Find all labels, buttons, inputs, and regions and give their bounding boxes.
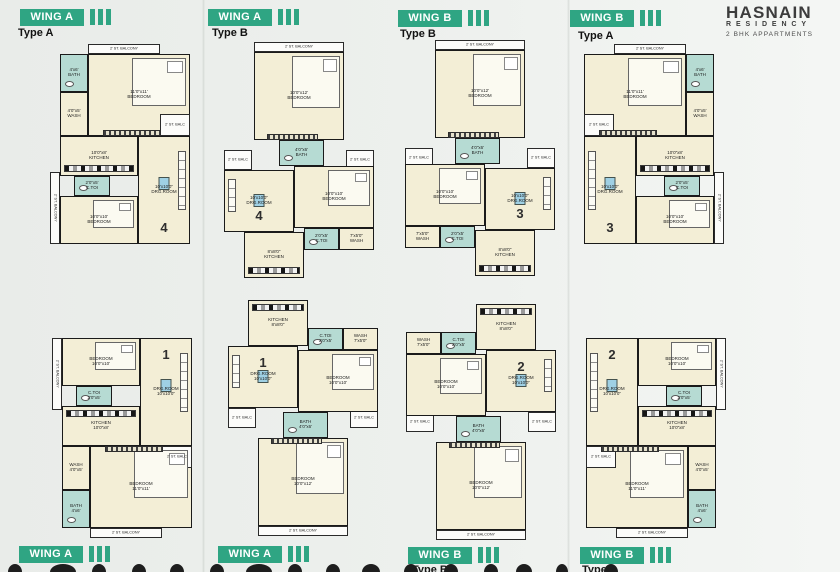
room-label: 2' ST. BALC: [412, 416, 428, 427]
bed-furniture: [132, 58, 186, 106]
room-label: 2' ST. BALC: [166, 119, 183, 131]
kitchen-counter: [248, 267, 300, 274]
label-line: BATH: [472, 151, 484, 156]
room-balcony-top: 2' ST. BALCONY: [88, 44, 160, 54]
room-bath: 4'0"x6'BATH: [279, 140, 324, 166]
flat-number: 4: [160, 220, 167, 235]
label-line: 7'x5'0": [354, 339, 367, 344]
room-bedroom-2: BEDROOM10'0"x10': [638, 338, 716, 386]
flat-number: 1: [259, 355, 266, 370]
scan-artifact: [246, 564, 272, 572]
room-label: 4'0"x5'WASH: [690, 98, 710, 130]
stripe-bar: [486, 547, 491, 563]
label-line: BATH: [300, 420, 312, 425]
room-bedroom-1: 10'0"x12'BEDROOM: [254, 52, 344, 140]
label-line: 7'x5'0": [416, 232, 429, 237]
room-label: 4'0"x5'WASH: [64, 98, 84, 130]
room-label: 2' ST. BALC: [356, 412, 372, 423]
kitchen-counter: [479, 265, 531, 272]
room-wash: WASH7'x5'0": [343, 328, 378, 350]
wing-tag: WING B: [408, 546, 499, 564]
label-line: 2' ST. BALCONY: [110, 47, 138, 51]
label-line: 4'x6': [698, 509, 707, 514]
room-balcony-top: 2' ST. BALCONY: [616, 528, 688, 538]
label-line: 2' ST. BALC: [409, 156, 429, 160]
wing-stripes-decoration: [90, 9, 111, 25]
toilet-fixture: [65, 81, 74, 87]
room-balc-left: 2' ST. BALC: [224, 150, 252, 170]
page-crease: [567, 0, 570, 572]
label-line: 2' ST. BALC: [532, 420, 552, 424]
room-c-toi: 2'0"x5'C.TOI: [664, 176, 700, 196]
table-furniture: [258, 370, 269, 383]
toilet-fixture: [67, 517, 76, 523]
label-line: 2' ST. BALCONY: [112, 531, 140, 535]
wing-label: WING A: [19, 546, 83, 563]
wing-label: WING B: [408, 547, 472, 564]
wing-tag: WING A: [19, 545, 110, 563]
room-bath: BATH4'x6': [62, 490, 90, 528]
table-furniture: [159, 177, 170, 190]
label-line: 4'0"x6': [472, 429, 485, 434]
wardrobe-strip: [601, 446, 659, 452]
floor-plan-2-wing-a: 2' ST. BALCONY10'0"x12'BEDROOM4'0"x6'BAT…: [224, 42, 374, 278]
toilet-fixture: [460, 153, 469, 159]
floor-plan-1-wing-a: 2' ST. BALCONY11'0"x11'BEDROOM4'x6'BATH4…: [50, 44, 190, 244]
label-line: 2'0"x5': [451, 232, 464, 237]
stripe-bar: [476, 10, 481, 26]
wing-stripes-decoration: [650, 547, 671, 563]
label-line: WASH: [354, 334, 367, 339]
toilet-fixture: [691, 81, 700, 87]
label-line: C.TOI: [678, 391, 690, 396]
room-wash: WASH7'x5'0": [406, 332, 441, 354]
room-c-toi: C.TOI2'0"x5': [308, 328, 343, 350]
label-line: 10'0"x8': [667, 151, 683, 156]
room-kitchen: 8'x8'0"KITCHEN: [244, 232, 304, 278]
label-line: 2' ST. BALC: [165, 123, 185, 127]
label-line: 2' ST. BALC: [410, 420, 430, 424]
wardrobe-strip: [448, 132, 499, 138]
brand-name: HASNAIN: [726, 5, 834, 20]
type-label: Type A: [18, 27, 53, 39]
flat-number: 2: [608, 347, 615, 362]
label-line: KITCHEN: [665, 156, 685, 161]
room-c-toi: C.TOI2'0"x5': [441, 332, 476, 354]
label-line: 2' ST. BALC: [232, 416, 252, 420]
label-line: 10'0"x8': [91, 151, 107, 156]
label-line: WASH: [350, 239, 363, 244]
label-line: 4'0"x6': [295, 148, 308, 153]
sofa-furniture: [590, 353, 598, 412]
label-line: BATH: [68, 73, 80, 78]
label-line: 4'0"x5': [693, 109, 706, 114]
toilet-fixture: [81, 395, 90, 401]
room-balcony-top: 2' ST. BALCONY: [614, 44, 686, 54]
stripe-bar: [656, 10, 661, 26]
label-line: 2' ST. BALCONY: [53, 194, 57, 222]
wing-tag: WING A: [20, 8, 111, 26]
room-balcony-left: 2' ST. BALCONY: [52, 338, 62, 410]
wing-tag: WING B: [398, 9, 489, 27]
room-drg-room: DRG.ROOM10'x10'0"1: [228, 346, 298, 408]
room-label: 2' ST. BALCONY: [630, 531, 673, 536]
room-drg-room: 10'x10'0"DRG.ROOM3: [584, 136, 636, 244]
bed-furniture: [473, 54, 521, 106]
label-line: WASH: [695, 463, 708, 468]
room-label: 2' ST. BALC: [352, 154, 368, 165]
label-line: C.TOI: [453, 338, 465, 343]
room-bedroom-2: BEDROOM10'0"x10': [298, 350, 378, 412]
label-line: 10'x10'0": [603, 392, 621, 397]
scan-artifact: [326, 564, 340, 572]
room-c-toi: 2'0"x5'C.TOI: [74, 176, 110, 196]
room-bedroom-1: 10'0"x12'BEDROOM: [435, 50, 525, 138]
wing-stripes-decoration: [278, 9, 299, 25]
scan-artifact: [444, 564, 458, 572]
toilet-fixture: [446, 343, 455, 349]
room-bedroom-2: 10'0"x10'BEDROOM: [405, 164, 485, 226]
floor-plan-5-wing-a: 2' ST. BALCONYBEDROOM11'0"x11'BATH4'x6'W…: [52, 338, 192, 538]
wing-tag: WING A: [208, 8, 299, 26]
kitchen-counter: [252, 304, 304, 311]
label-line: 2'0"x5': [85, 181, 98, 186]
label-line: 2'0"x5': [675, 181, 688, 186]
room-label: 2' ST. BALC: [234, 412, 250, 423]
scan-artifact: [516, 564, 532, 572]
stripe-bar: [494, 547, 499, 563]
label-line: BATH: [296, 153, 308, 158]
room-balcony-left: 2' ST. BALCONY: [50, 172, 60, 244]
label-line: 7'x5'0": [350, 234, 363, 239]
room-drg-room: DRG.ROOM10'x10'0"1: [140, 338, 192, 446]
label-line: WASH: [416, 237, 429, 242]
room-balcony-top: 2' ST. BALCONY: [435, 40, 525, 50]
room-label: 2' ST. BALCONY: [454, 533, 509, 538]
floor-plan-6-wing-a: 2' ST. BALCONYBEDROOM10'0"x12'BATH4'0"x6…: [228, 300, 378, 536]
flat-number: 3: [606, 220, 613, 235]
label-line: 2' ST. BALC: [531, 156, 551, 160]
flat-number: 2: [517, 359, 524, 374]
room-label: 2' ST. BALCONY: [53, 186, 58, 229]
room-wash: WASH4'0"x5': [62, 446, 90, 490]
label-line: KITCHEN: [89, 156, 109, 161]
room-label: 2' ST. BALCONY: [717, 186, 722, 229]
sofa-furniture: [228, 179, 236, 213]
room-label: 2' ST. BALC: [411, 152, 427, 163]
stripe-bar: [89, 546, 94, 562]
label-line: KITCHEN: [268, 318, 288, 323]
room-bedroom-2: 10'0"x10'BEDROOM: [636, 196, 714, 244]
label-line: 10'0"x8': [93, 426, 109, 431]
room-kitchen: KITCHEN8'x8'0": [476, 304, 536, 350]
toilet-fixture: [288, 427, 297, 433]
sofa-furniture: [543, 177, 551, 211]
room-label: WASH4'0"x5': [692, 452, 712, 484]
label-line: DRG.ROOM: [597, 190, 622, 195]
label-line: 2' ST. BALCONY: [289, 529, 317, 533]
toilet-fixture: [445, 237, 454, 243]
toilet-fixture: [309, 239, 318, 245]
wing-stripes-decoration: [478, 547, 499, 563]
room-label: 2' ST. BALCONY: [453, 43, 508, 48]
label-line: 4'0"x6': [471, 146, 484, 151]
label-line: 2' ST. BALC: [591, 455, 611, 459]
label-line: 2' ST. BALC: [589, 123, 609, 127]
room-kitchen: 10'0"x8'KITCHEN: [636, 136, 714, 176]
bed-furniture: [328, 170, 370, 206]
room-label: WASH7'x5'0": [348, 332, 373, 347]
wardrobe-strip: [267, 134, 318, 140]
wing-tag: WING A: [218, 545, 309, 563]
label-line: 10'0"x8': [669, 426, 685, 431]
label-line: KITCHEN: [495, 253, 515, 258]
room-label: 2' ST. BALCONY: [719, 352, 724, 395]
label-line: WASH: [69, 463, 82, 468]
room-drg-room: DRG.ROOM10'x10'0"2: [586, 338, 638, 446]
kitchen-counter: [66, 410, 136, 417]
room-balcony-top: 2' ST. BALCONY: [90, 528, 162, 538]
label-line: WASH: [67, 114, 80, 119]
bed-furniture: [292, 56, 340, 108]
bed-furniture: [671, 342, 712, 370]
label-line: 7'x5'0": [417, 343, 430, 348]
flat-number: 1: [162, 347, 169, 362]
room-bedroom-1: BEDROOM10'0"x12': [258, 438, 348, 526]
wardrobe-strip: [449, 442, 500, 448]
room-label: 2' ST. BALC: [534, 416, 550, 427]
label-line: 2' ST. BALCONY: [466, 43, 494, 47]
stripe-bar: [478, 547, 483, 563]
type-label: Type A: [578, 30, 613, 42]
table-furniture: [254, 194, 265, 207]
room-c-toi: C.TOI2'0"x5': [666, 386, 702, 406]
table-furniture: [161, 379, 172, 392]
stripe-bar: [658, 547, 663, 563]
floor-plan-3-wing-b: 2' ST. BALCONY10'0"x12'BEDROOM4'0"x6'BAT…: [405, 40, 555, 276]
wing-stripes-decoration: [288, 546, 309, 562]
label-line: BATH: [70, 504, 82, 509]
toilet-fixture: [284, 155, 293, 161]
room-wash: 4'0"x5'WASH: [60, 92, 88, 136]
room-label: WASH7'x5'0": [411, 336, 436, 351]
room-balcony-top: 2' ST. BALCONY: [436, 530, 526, 540]
label-line: 2'0"x5': [315, 234, 328, 239]
room-label: KITCHEN8'x8'0": [484, 311, 528, 344]
wing-tag: WING B: [580, 546, 671, 564]
stripe-bar: [296, 546, 301, 562]
floor-plan-4-wing-b: 2' ST. BALCONY11'0"x11'BEDROOM4'x6'BATH4…: [584, 44, 724, 244]
label-line: 4'0"x6': [299, 425, 312, 430]
scan-artifact: [132, 564, 146, 572]
wing-label: WING A: [208, 9, 272, 26]
scan-artifact: [362, 564, 380, 572]
room-label: 2' ST. BALCONY: [102, 47, 145, 52]
brand-tagline: 2 BHK APPARTMENTS: [726, 31, 834, 38]
room-bath: BATH4'x6': [688, 490, 716, 528]
wing-stripes-decoration: [468, 10, 489, 26]
label-line: 2' ST. BALC: [354, 416, 374, 420]
room-label: 2' ST. BALC: [230, 154, 246, 165]
stripe-bar: [468, 10, 473, 26]
label-line: 4'x6': [72, 509, 81, 514]
room-kitchen: KITCHEN10'0"x8': [62, 406, 140, 446]
room-balc-left: 2' ST. BALC: [228, 408, 256, 428]
bed-furniture: [440, 358, 482, 394]
bed-furniture: [628, 58, 682, 106]
room-bath: BATH4'0"x6': [456, 416, 501, 442]
brand-subname: RESIDENCY: [726, 21, 834, 28]
scan-artifact: [8, 564, 22, 572]
bed-furniture: [474, 446, 522, 498]
label-line: WASH: [693, 114, 706, 119]
bed-furniture: [630, 450, 684, 498]
brand-logo: HASNAIN RESIDENCY 2 BHK APPARTMENTS: [726, 5, 834, 38]
room-drg-room: 10'x10'0"DRG.ROOM4: [224, 170, 294, 232]
label-line: DRG.ROOM: [151, 190, 176, 195]
room-bath: 4'x6'BATH: [60, 54, 88, 92]
label-line: 4'x6': [70, 68, 79, 73]
room-bath: 4'x6'BATH: [686, 54, 714, 92]
room-bedroom-2: 10'0"x10'BEDROOM: [60, 196, 138, 244]
label-line: 4'0"x5': [67, 109, 80, 114]
scan-artifact: [50, 564, 76, 572]
sofa-furniture: [588, 151, 596, 210]
scan-artifact: [484, 564, 498, 572]
label-line: 2' ST. BALCONY: [717, 194, 721, 222]
table-furniture: [515, 192, 526, 205]
label-line: KITCHEN: [91, 421, 111, 426]
bed-furniture: [439, 168, 481, 204]
label-line: BATH: [696, 504, 708, 509]
label-line: WASH: [417, 338, 430, 343]
sofa-furniture: [178, 151, 186, 210]
room-bedroom-2: BEDROOM10'0"x10': [406, 354, 486, 416]
bed-furniture: [95, 342, 136, 370]
room-kitchen: 8'x8'0"KITCHEN: [475, 230, 535, 276]
label-line: 8'x8'0": [267, 250, 280, 255]
stripe-bar: [105, 546, 110, 562]
bed-furniture: [332, 354, 374, 390]
room-label: KITCHEN8'x8'0": [256, 307, 300, 340]
stripe-bar: [278, 9, 283, 25]
wing-label: WING B: [570, 10, 634, 27]
flat-number: 4: [255, 208, 262, 223]
stripe-bar: [98, 9, 103, 25]
toilet-fixture: [693, 517, 702, 523]
room-c-toi: C.TOI2'0"x5': [76, 386, 112, 406]
sofa-furniture: [232, 355, 240, 389]
sofa-furniture: [180, 353, 188, 412]
flat-number: 3: [516, 206, 523, 221]
room-bedroom-2: BEDROOM10'0"x10': [62, 338, 140, 386]
label-line: KITCHEN: [264, 255, 284, 260]
label-line: 2' ST. BALCONY: [285, 45, 313, 49]
room-bath: BATH4'0"x6': [283, 412, 328, 438]
label-line: 2' ST. BALCONY: [636, 47, 664, 51]
stripe-bar: [294, 9, 299, 25]
scan-artifact: [170, 564, 184, 572]
room-wash: 4'0"x5'WASH: [686, 92, 714, 136]
wing-label: WING A: [20, 9, 84, 26]
room-label: 2' ST. BALC: [533, 152, 549, 163]
toilet-fixture: [313, 339, 322, 345]
brochure-page: HASNAIN RESIDENCY 2 BHK APPARTMENTS WING…: [0, 0, 840, 572]
sofa-furniture: [544, 359, 552, 393]
bed-furniture: [669, 200, 710, 228]
room-label: 2' ST. BALCONY: [55, 352, 60, 395]
kitchen-counter: [480, 308, 532, 315]
room-balcony-top: 2' ST. BALCONY: [258, 526, 348, 536]
kitchen-counter: [64, 165, 134, 172]
label-line: 2' ST. BALCONY: [719, 360, 723, 388]
room-kitchen: 10'0"x8'KITCHEN: [60, 136, 138, 176]
wing-stripes-decoration: [89, 546, 110, 562]
scan-artifact: [556, 564, 568, 572]
stripe-bar: [97, 546, 102, 562]
room-bath: 4'0"x6'BATH: [455, 138, 500, 164]
label-line: 2' ST. BALCONY: [638, 531, 666, 535]
label-line: 2' ST. BALC: [228, 158, 248, 162]
label-line: 4'0"x5': [69, 468, 82, 473]
room-label: 7'x5'0"WASH: [344, 232, 369, 247]
label-line: 2' ST. BALCONY: [467, 533, 495, 537]
bed-furniture: [134, 450, 188, 498]
room-label: 2' ST. BALCONY: [272, 45, 327, 50]
stripe-bar: [650, 547, 655, 563]
bed-furniture: [93, 200, 134, 228]
table-furniture: [605, 177, 616, 190]
room-wash: WASH4'0"x5': [688, 446, 716, 490]
toilet-fixture: [669, 185, 678, 191]
room-balc-left: 2' ST. BALC: [527, 148, 555, 168]
room-c-toi: 2'0"x5'C.TOI: [440, 226, 475, 248]
label-line: 8'x8'0": [499, 327, 512, 332]
page-crease: [202, 0, 205, 572]
room-balcony-left: 2' ST. BALCONY: [716, 338, 726, 410]
type-label: Type B: [212, 27, 248, 39]
label-line: 8'x8'0": [271, 323, 284, 328]
room-c-toi: 2'0"x5'C.TOI: [304, 228, 339, 250]
room-balcony-left: 2' ST. BALCONY: [714, 172, 724, 244]
room-balcony-top: 2' ST. BALCONY: [254, 42, 344, 52]
stripe-bar: [640, 10, 645, 26]
table-furniture: [607, 379, 618, 392]
stripe-bar: [666, 547, 671, 563]
stripe-bar: [648, 10, 653, 26]
toilet-fixture: [671, 395, 680, 401]
label-line: BATH: [473, 424, 485, 429]
label-line: 2' ST. BALCONY: [55, 360, 59, 388]
room-label: WASH4'0"x5': [66, 452, 86, 484]
wardrobe-strip: [599, 130, 657, 136]
floor-plan-8-wing-b: 2' ST. BALCONYBEDROOM11'0"x11'BATH4'x6'W…: [586, 338, 726, 538]
table-furniture: [516, 374, 527, 387]
wardrobe-strip: [105, 446, 163, 452]
room-bedroom-1: BEDROOM10'0"x12': [436, 442, 526, 530]
label-line: 10'x10'0": [157, 392, 175, 397]
room-kitchen: KITCHEN8'x8'0": [248, 300, 308, 346]
kitchen-counter: [640, 165, 710, 172]
room-drg-room: DRG.ROOM10'x10'0"2: [486, 350, 556, 412]
label-line: KITCHEN: [496, 322, 516, 327]
label-line: C.TOI: [88, 391, 100, 396]
room-label: 2' ST. BALCONY: [628, 47, 671, 52]
scan-artifact: [92, 564, 106, 572]
label-line: BATH: [694, 73, 706, 78]
room-label: 7'x5'0"WASH: [410, 230, 435, 245]
scan-artifact: [210, 564, 224, 572]
